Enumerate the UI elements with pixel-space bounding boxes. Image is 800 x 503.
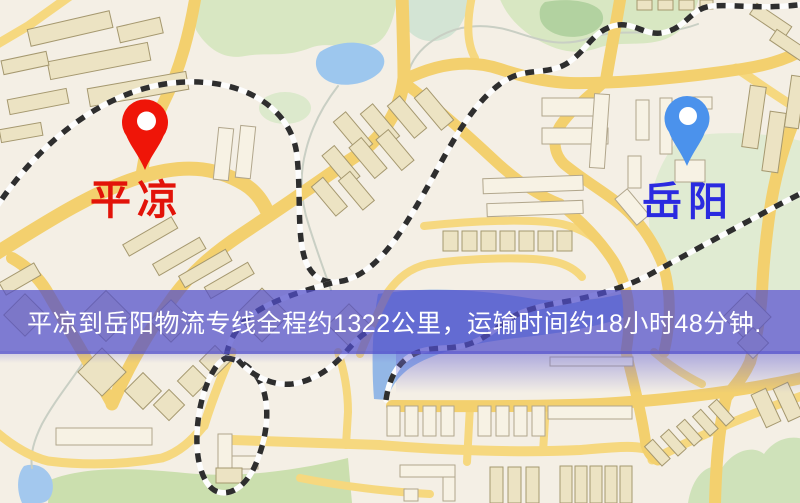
banner-fade-right bbox=[396, 351, 800, 393]
destination-city-label: 岳阳 bbox=[642, 182, 734, 222]
map-screenshot[interactable]: 平凉 岳阳 平凉到岳阳物流专线全程约1322公里，运输时间约18小时48分钟. bbox=[0, 0, 800, 503]
route-info-text: 平凉到岳阳物流专线全程约1322公里，运输时间约18小时48分钟. bbox=[0, 304, 762, 340]
origin-city-label: 平凉 bbox=[90, 180, 184, 221]
route-info-banner: 平凉到岳阳物流专线全程约1322公里，运输时间约18小时48分钟. bbox=[0, 290, 800, 354]
map-canvas[interactable] bbox=[0, 0, 800, 503]
